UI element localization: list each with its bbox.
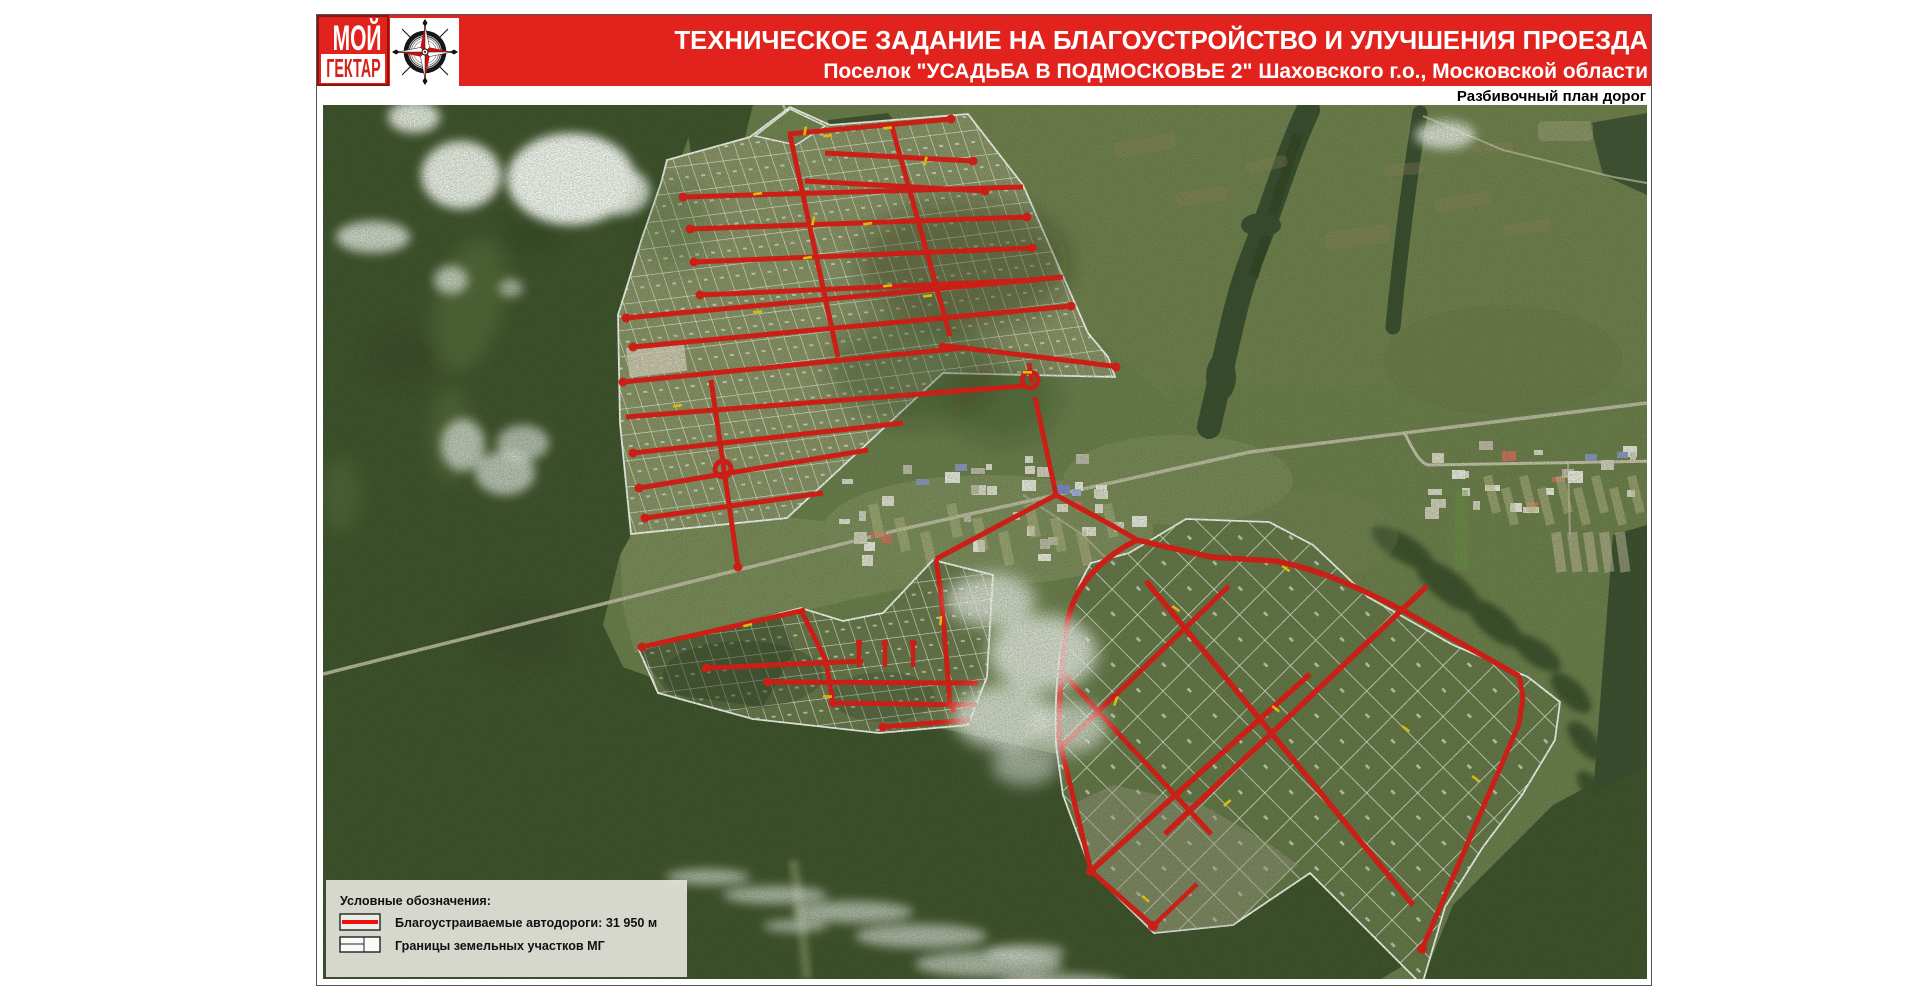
svg-text:Условные обозначения:: Условные обозначения: bbox=[340, 894, 491, 908]
svg-text:Благоустраиваемые автодороги:: Благоустраиваемые автодороги: 31 950 м bbox=[395, 916, 657, 930]
svg-text:Границы земельных участков МГ: Границы земельных участков МГ bbox=[395, 939, 605, 953]
